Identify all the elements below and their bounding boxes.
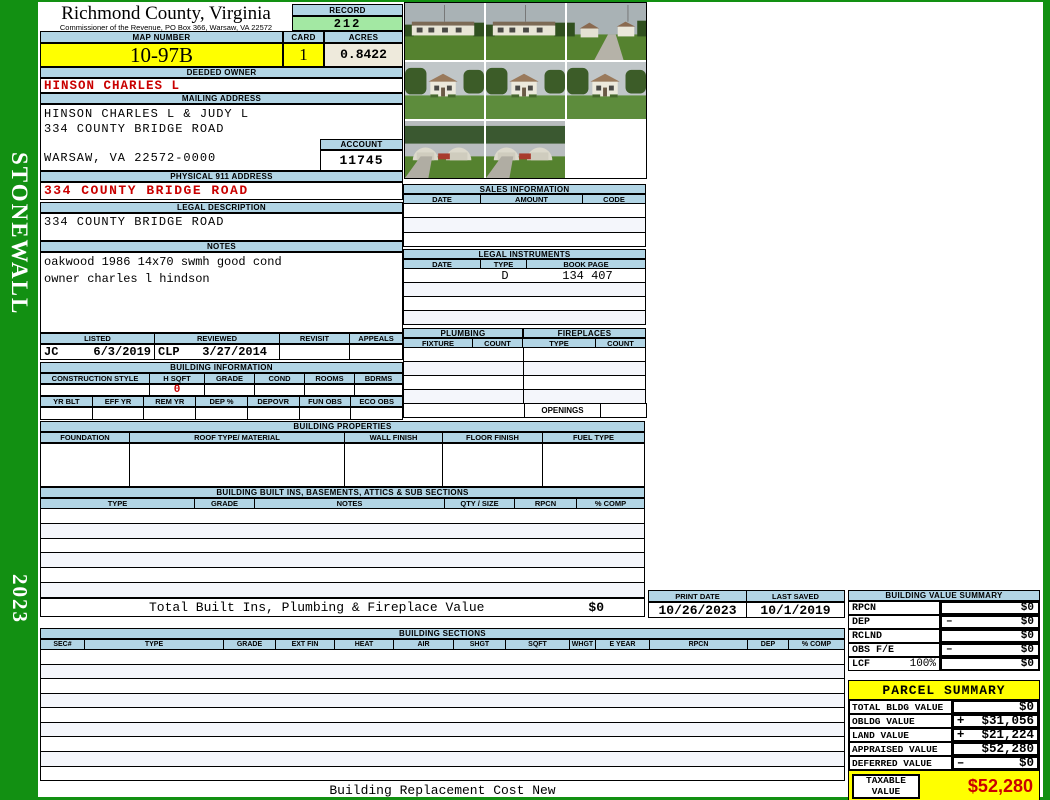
table-row [404,390,645,403]
table-row [41,539,644,554]
fireplaces-header: FIREPLACES [523,328,646,338]
yrblt-header: YR BLT [40,396,93,407]
map-number-value: 10-97B [40,43,283,67]
bvs-label: OBS F/E [852,645,894,656]
deeded-owner-header: DEEDED OWNER [40,67,403,78]
sales-information-header: SALES INFORMATION [403,184,646,194]
hsqft-header: H SQFT [150,373,205,384]
ps-value: $52,280 [981,742,1034,756]
listed-date: 6/3/2019 [93,345,151,359]
ecoobs-header: ECO OBS [351,396,403,407]
built-ins-total-label: Total Built Ins, Plumbing & Fireplace Va… [149,600,484,615]
sales-empty-rows [403,204,646,247]
tax-year-label: 2023 [7,574,32,624]
property-photo[interactable] [567,62,646,119]
property-photo[interactable] [405,62,484,119]
table-row [404,297,645,311]
district-label: STONEWALL [6,152,32,315]
ps-op: + [957,728,965,742]
bvs-value: $0 [1021,602,1034,614]
remyr-header: REM YR [144,396,196,407]
fixture-header: FIXTURE [403,338,473,348]
table-row [41,650,844,665]
last-saved-header: LAST SAVED [747,590,845,602]
building-info-row2-values [40,407,403,420]
ps-value: $21,224 [981,728,1034,742]
table-row [404,233,645,246]
bi-rpcn-header: RPCN [515,498,577,509]
construction-style-header: CONSTRUCTION STYLE [40,373,150,384]
building-value-summary-header: BUILDING VALUE SUMMARY [848,590,1040,601]
plumbing-fireplace-columns: FIXTURE COUNT TYPE COUNT [403,338,646,348]
bs-type-header: TYPE [85,639,224,650]
cond-value [255,384,305,396]
notes-box: oakwood 1986 14x70 swmh good cond owner … [40,252,403,333]
bvs-label: RPCN [852,603,876,614]
rooms-value [305,384,355,396]
last-saved-value: 10/1/2019 [747,602,845,618]
bi-type-header: TYPE [40,498,195,509]
building-info-row1-headers: CONSTRUCTION STYLE H SQFT GRADE COND ROO… [40,373,403,384]
bs-sqft-header: SQFT [506,639,570,650]
li-type-value: D [482,269,528,283]
bvs-row-dep: DEP –$0 [848,615,1040,629]
table-row [41,752,844,767]
table-row [404,283,645,297]
bi-qty-header: QTY / SIZE [445,498,515,509]
grade-value [205,384,255,396]
building-info-row1-values: 0 [40,384,403,396]
plumbing-count-header: COUNT [473,338,523,348]
bi-grade-header: GRADE [195,498,255,509]
ps-op: – [957,756,965,770]
table-row [404,204,645,218]
wall-finish-header: WALL FINISH [345,432,443,443]
table-row [41,694,844,709]
record-header: RECORD [292,4,403,16]
fuel-type-header: FUEL TYPE [543,432,645,443]
sales-date-header: DATE [403,194,481,204]
bs-heat-header: HEAT [335,639,394,650]
building-sections-empty-rows [40,650,845,781]
property-photo[interactable] [486,121,565,178]
sales-code-header: CODE [583,194,646,204]
building-sections-header: BUILDING SECTIONS [40,628,845,639]
built-ins-header: BUILDING BUILT INS, BASEMENTS, ATTICS & … [40,487,645,498]
county-title: Richmond County, Virginia [42,3,290,25]
print-info-headers: PRINT DATE LAST SAVED [648,590,845,602]
plumbing-fireplace-rows [403,348,646,404]
funobs-header: FUN OBS [300,396,352,407]
floor-finish-header: FLOOR FINISH [443,432,543,443]
building-info-row2-headers: YR BLT EFF YR REM YR DEP % DEPOVR FUN OB… [40,396,403,407]
table-row [41,568,644,583]
mailing-line-1: HINSON CHARLES L & JUDY L [41,105,402,121]
parcel-summary: PARCEL SUMMARY TOTAL BLDG VALUE $0 OBLDG… [848,680,1040,800]
ps-row-deferred: DEFERRED VALUE –$0 [849,756,1039,770]
openings-row: OPENINGS [403,404,646,418]
property-photo[interactable] [486,3,565,60]
record-value: 212 [292,16,403,31]
bs-comp-header: % COMP [789,639,845,650]
depovr-header: DEPOVR [248,396,300,407]
taxable-value-row: TAXABLE VALUE $52,280 [849,770,1039,800]
table-row [404,376,645,390]
li-bookpage-value: 134 407 [528,269,647,283]
building-value-summary-table: RPCN $0 DEP –$0 RCLND $0 OBS F/E –$0 LCF… [848,601,1040,671]
ps-value: $0 [1019,756,1034,770]
acres-value: 0.8422 [324,43,403,67]
bs-dep-header: DEP [748,639,789,650]
reviewed-date: 3/27/2014 [202,345,267,359]
notes-header: NOTES [40,241,403,252]
reviewed-header: REVIEWED [155,333,280,344]
legal-instrument-row: D 134 407 [404,269,645,283]
table-row [404,362,645,376]
bvs-op: – [946,616,953,628]
roof-header: ROOF TYPE/ MATERIAL [130,432,345,443]
bdrms-value [355,384,403,396]
hsqft-number: 0 [174,384,181,396]
table-row [41,583,644,597]
mailing-address-header: MAILING ADDRESS [40,93,403,104]
deeded-owner-value: HINSON CHARLES L [40,78,403,93]
reviewed-by: CLP [158,345,180,359]
bvs-row-lcf: LCF100% $0 [848,657,1040,671]
fireplace-type-header: TYPE [523,338,596,348]
building-properties-columns: FOUNDATION ROOF TYPE/ MATERIAL WALL FINI… [40,432,645,443]
effyr-header: EFF YR [93,396,145,407]
cond-header: COND [255,373,305,384]
mailing-line-2: 334 COUNTY BRIDGE ROAD [41,121,402,136]
ps-value: $31,056 [981,714,1034,728]
table-row [41,737,844,752]
bs-extfin-header: EXT FIN [276,639,335,650]
rooms-header: ROOMS [305,373,355,384]
legal-description-value: 334 COUNTY BRIDGE ROAD [41,214,402,229]
reviewed-cell: CLP 3/27/2014 [155,344,280,360]
property-photo[interactable] [486,62,565,119]
ps-row-totalbldg: TOTAL BLDG VALUE $0 [849,700,1039,714]
sales-amount-header: AMOUNT [481,194,583,204]
acres-header: ACRES [324,31,403,43]
table-row [41,708,844,723]
table-row [41,679,844,694]
account-value: 11745 [320,150,403,171]
legal-instruments-columns: DATE TYPE BOOK PAGE [403,259,646,269]
bs-whgt-header: WHGT [570,639,596,650]
print-info-values: 10/26/2023 10/1/2019 [648,602,845,618]
listed-cell: JC 6/3/2019 [40,344,155,360]
revisit-header: REVISIT [280,333,350,344]
bvs-value: $0 [1021,644,1034,656]
table-row [41,767,844,781]
notes-line-1: oakwood 1986 14x70 swmh good cond [41,253,402,269]
fireplace-count-header: COUNT [596,338,646,348]
print-date-value: 10/26/2023 [648,602,747,618]
legal-description-box: 334 COUNTY BRIDGE ROAD [40,213,403,241]
listed-by: JC [44,345,58,359]
ps-op: + [957,714,965,728]
construction-style-value [40,384,150,396]
bvs-label: DEP [852,617,870,628]
taxable-value-amount: $52,280 [920,776,1039,797]
bi-notes-header: NOTES [255,498,445,509]
bvs-value: $0 [1021,630,1034,642]
legal-instruments-header: LEGAL INSTRUMENTS [403,249,646,259]
bs-rpcn-header: RPCN [650,639,748,650]
table-row [404,348,645,362]
table-row [41,553,644,568]
physical-911-value: 334 COUNTY BRIDGE ROAD [40,182,403,200]
legal-description-header: LEGAL DESCRIPTION [40,202,403,213]
property-record-card: STONEWALL 2023 Richmond County, Virginia… [0,0,1050,800]
sales-columns: DATE AMOUNT CODE [403,194,646,204]
ps-row-appraised: APPRAISED VALUE $52,280 [849,742,1039,756]
revisit-cell [280,344,350,360]
card-value: 1 [283,43,324,67]
bs-eyear-header: E YEAR [596,639,650,650]
built-ins-columns: TYPE GRADE NOTES QTY / SIZE RPCN % COMP [40,498,645,509]
property-photo[interactable] [405,3,484,60]
table-row [41,509,644,524]
building-properties-values [40,443,645,487]
bs-air-header: AIR [394,639,454,650]
deppct-header: DEP % [196,396,248,407]
bs-shgt-header: SHGT [454,639,506,650]
taxable-value-label: TAXABLE VALUE [852,774,920,799]
review-header-row: LISTED REVIEWED REVISIT APPEALS [40,333,403,344]
listed-header: LISTED [40,333,155,344]
bs-grade-header: GRADE [224,639,276,650]
review-value-row: JC 6/3/2019 CLP 3/27/2014 [40,344,403,360]
ps-row-obldg: OBLDG VALUE +$31,056 [849,714,1039,728]
property-photo[interactable] [405,121,484,178]
account-header: ACCOUNT [320,139,403,150]
map-number-header: MAP NUMBER [40,31,283,43]
bvs-label: RCLND [852,631,882,642]
plumbing-header: PLUMBING [403,328,523,338]
building-properties-header: BUILDING PROPERTIES [40,421,645,432]
ps-value: $0 [1019,700,1034,714]
bdrms-header: BDRMS [355,373,403,384]
table-row [41,665,844,680]
lcf-percent: 100% [910,658,936,670]
table-row [404,311,645,324]
footer-caption: Building Replacement Cost New [40,783,845,798]
notes-line-2: owner charles l hindson [41,269,402,286]
physical-911-header: PHYSICAL 911 ADDRESS [40,171,403,182]
table-row [41,524,644,539]
li-date-header: DATE [403,259,481,269]
bs-sec-header: SEC# [40,639,85,650]
ps-row-land: LAND VALUE +$21,224 [849,728,1039,742]
photo-empty-cell [567,121,646,178]
bvs-row-obs: OBS F/E –$0 [848,643,1040,657]
bvs-row-rpcn: RPCN $0 [848,601,1040,615]
parcel-summary-header: PARCEL SUMMARY [849,681,1039,700]
building-sections-columns: SEC# TYPE GRADE EXT FIN HEAT AIR SHGT SQ… [40,639,845,650]
openings-value [600,403,647,418]
bvs-value: $0 [1021,616,1034,628]
property-photo[interactable] [567,3,646,60]
grade-header: GRADE [205,373,255,384]
card-header: CARD [283,31,324,43]
foundation-header: FOUNDATION [40,432,130,443]
bvs-row-rclnd: RCLND $0 [848,629,1040,643]
built-ins-empty-rows [40,509,645,598]
appeals-cell [350,344,403,360]
bi-comp-header: % COMP [577,498,645,509]
table-row [404,218,645,232]
photo-grid [404,2,647,179]
legal-instruments-rows: D 134 407 [403,269,646,325]
appeals-header: APPEALS [350,333,403,344]
openings-label: OPENINGS [524,403,601,418]
li-bookpage-header: BOOK PAGE [527,259,646,269]
built-ins-total-value: $0 [588,600,604,615]
bvs-value: $0 [1021,658,1034,670]
table-row [41,723,844,738]
bvs-label: LCF [852,659,870,670]
print-date-header: PRINT DATE [648,590,747,602]
li-type-header: TYPE [481,259,527,269]
hsqft-value: 0 [150,384,205,396]
building-information-header: BUILDING INFORMATION [40,362,403,373]
bvs-op: – [946,644,953,656]
built-ins-total-row: Total Built Ins, Plumbing & Fireplace Va… [40,598,645,617]
